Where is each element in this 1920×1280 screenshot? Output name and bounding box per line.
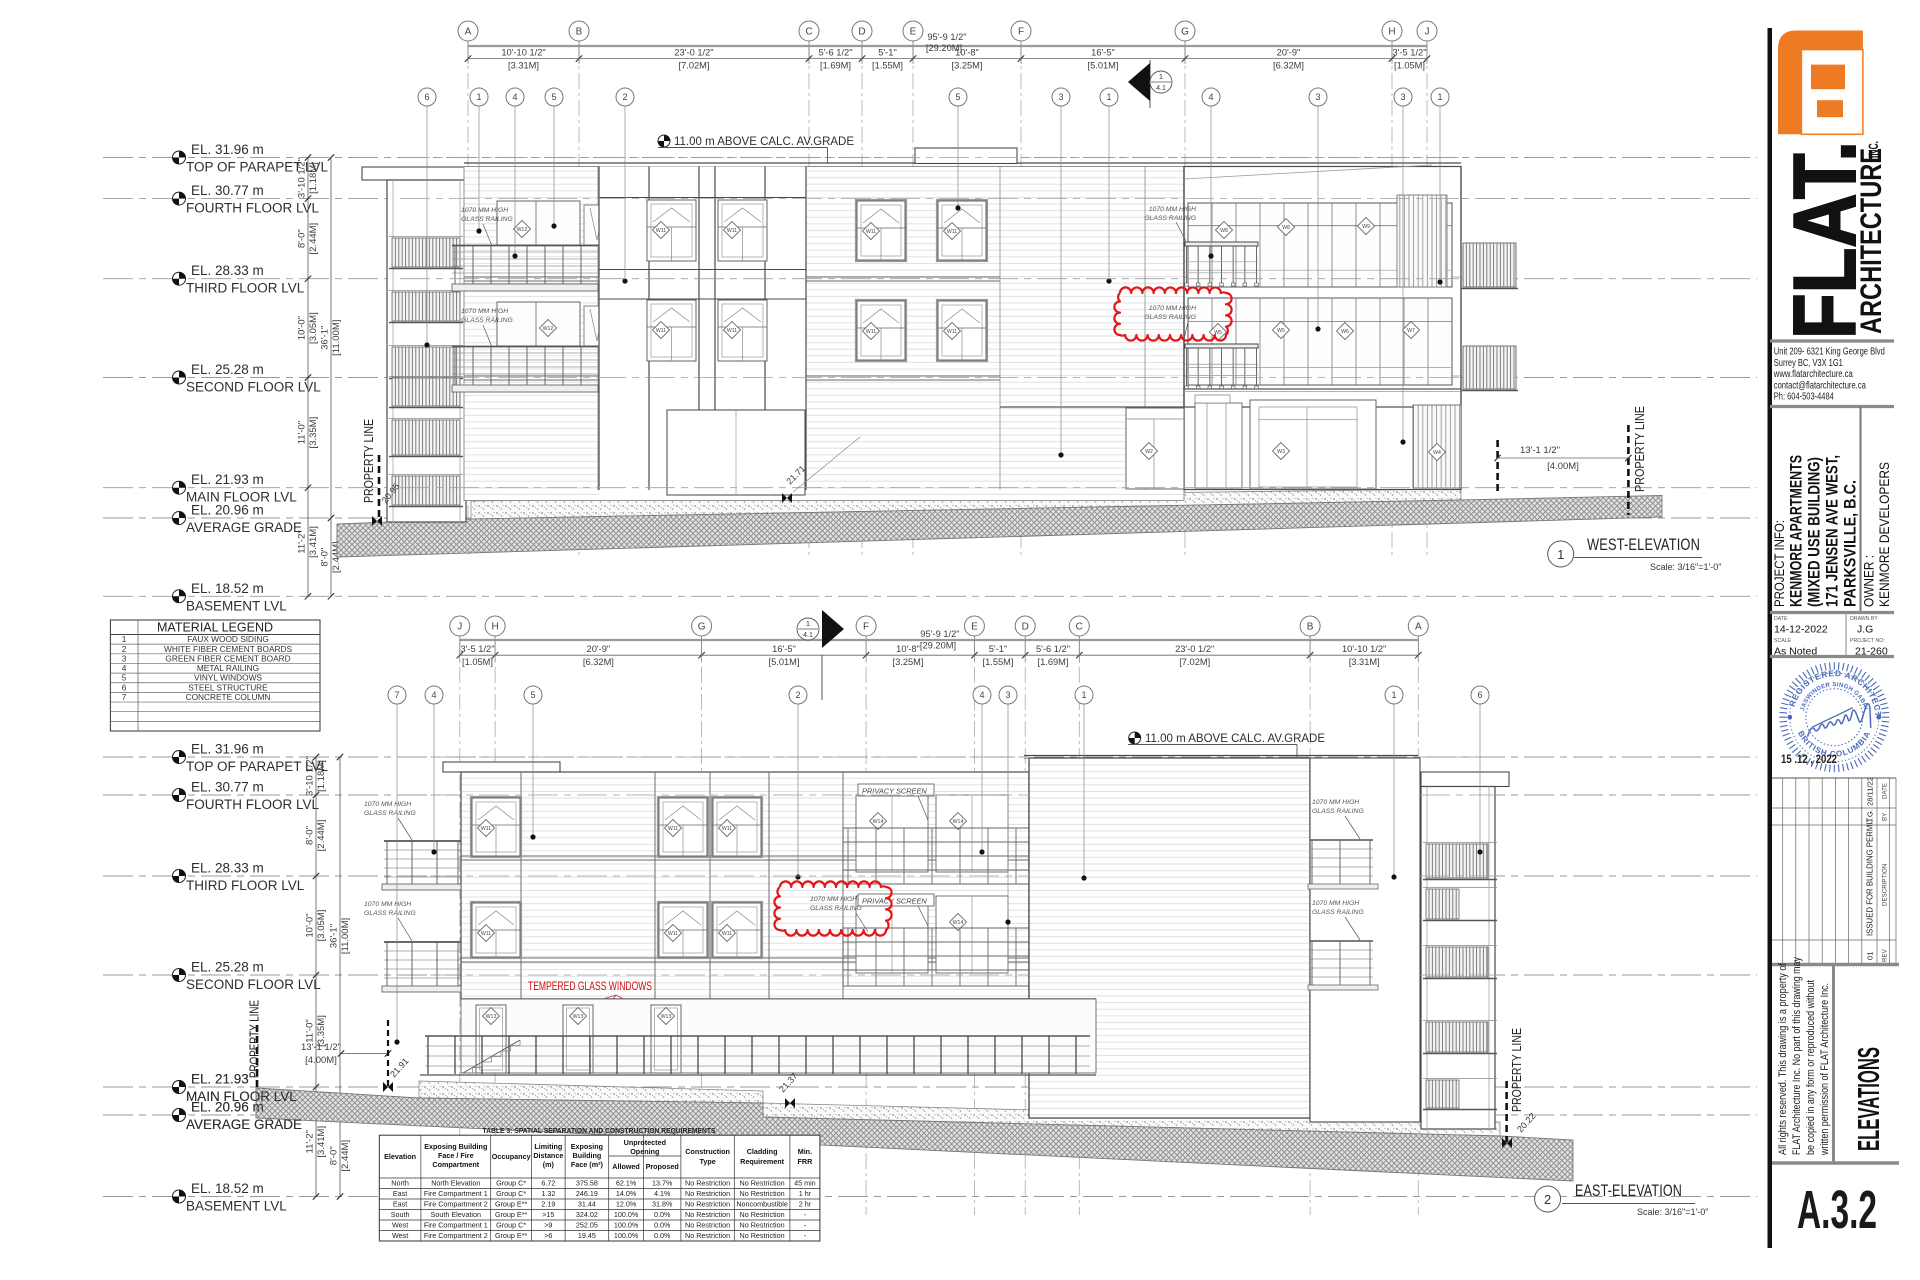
svg-text:DESCRIPTION: DESCRIPTION — [1882, 864, 1889, 906]
svg-text:B: B — [1307, 622, 1314, 633]
svg-text:EL. 18.52 m: EL. 18.52 m — [191, 1181, 264, 1196]
svg-text:No Restriction: No Restriction — [740, 1210, 785, 1219]
svg-text:Allowed: Allowed — [612, 1162, 640, 1171]
svg-text:G: G — [698, 622, 706, 633]
svg-text:31.44: 31.44 — [578, 1200, 596, 1209]
svg-text:North: North — [391, 1179, 409, 1188]
svg-text:5: 5 — [955, 92, 960, 102]
svg-text:Ph: 604-503-4484: Ph: 604-503-4484 — [1774, 392, 1834, 403]
svg-text:Compartment: Compartment — [432, 1160, 479, 1169]
svg-text:East: East — [393, 1200, 407, 1209]
svg-text:FOURTH FLOOR LVL: FOURTH FLOOR LVL — [186, 797, 320, 812]
svg-text:1070 MM HIGH: 1070 MM HIGH — [364, 901, 411, 908]
svg-text:1: 1 — [1159, 74, 1163, 81]
svg-text:A: A — [465, 27, 472, 38]
svg-text:4: 4 — [512, 92, 517, 102]
svg-text:W11: W11 — [722, 931, 732, 937]
svg-text:W8: W8 — [1220, 228, 1228, 234]
svg-text:MATERIAL LEGEND: MATERIAL LEGEND — [157, 621, 273, 635]
svg-text:[5.01M]: [5.01M] — [768, 657, 799, 667]
svg-text:1070 MM HIGH: 1070 MM HIGH — [1149, 305, 1196, 312]
svg-text:Fire Compartment 2: Fire Compartment 2 — [424, 1231, 488, 1240]
svg-text:EL. 20.96 m: EL. 20.96 m — [191, 503, 264, 518]
svg-text:Requirement: Requirement — [740, 1157, 785, 1166]
svg-text:GREEN FIBER CEMENT BOARD: GREEN FIBER CEMENT BOARD — [165, 653, 290, 663]
svg-text:1: 1 — [476, 92, 481, 102]
svg-text:F: F — [1018, 27, 1024, 38]
svg-text:(MIXED USE BUILDING): (MIXED USE BUILDING) — [1805, 457, 1824, 607]
svg-text:C: C — [1076, 622, 1083, 633]
svg-text:KENMORE APARTMENTS: KENMORE APARTMENTS — [1787, 455, 1806, 607]
svg-text:W11: W11 — [866, 229, 876, 235]
svg-text:[3.41M]: [3.41M] — [308, 526, 319, 558]
svg-text:W11: W11 — [727, 328, 737, 334]
svg-text:PRIVACY SCREEN: PRIVACY SCREEN — [862, 897, 927, 906]
svg-text:10'-10 1/2": 10'-10 1/2" — [501, 48, 545, 58]
svg-text:1070 MM HIGH: 1070 MM HIGH — [461, 207, 508, 214]
svg-text:10'-0": 10'-0" — [297, 316, 308, 340]
svg-text:1070 MM HIGH: 1070 MM HIGH — [364, 801, 411, 808]
svg-text:4: 4 — [979, 690, 984, 700]
svg-text:5: 5 — [530, 690, 535, 700]
svg-text:62.1%: 62.1% — [616, 1179, 637, 1188]
svg-text:1: 1 — [1081, 690, 1086, 700]
svg-text:>6: >6 — [544, 1231, 552, 1240]
svg-text:4.1%: 4.1% — [654, 1189, 671, 1198]
svg-text:1070 MM HIGH: 1070 MM HIGH — [1312, 900, 1359, 907]
svg-text:[2.44M]: [2.44M] — [308, 223, 319, 255]
svg-text:5'-6 1/2": 5'-6 1/2" — [1036, 644, 1070, 654]
svg-text:13.7%: 13.7% — [652, 1179, 673, 1188]
svg-text:3'-5 1/2": 3'-5 1/2" — [460, 644, 494, 654]
svg-text:OWNER :: OWNER : — [1862, 555, 1877, 607]
svg-text:METAL RAILING: METAL RAILING — [197, 663, 259, 673]
svg-text:[1.18M]: [1.18M] — [308, 162, 319, 194]
svg-text:INC.: INC. — [1866, 141, 1881, 158]
svg-text:4: 4 — [431, 690, 436, 700]
svg-text:[1.69M]: [1.69M] — [820, 61, 851, 71]
svg-text:DRAWN BY: DRAWN BY — [1850, 616, 1878, 622]
svg-text:W13: W13 — [661, 1014, 672, 1020]
svg-text:EL. 28.33 m: EL. 28.33 m — [191, 263, 264, 278]
svg-text:Scale: 3/16"=1'-0": Scale: 3/16"=1'-0" — [1650, 562, 1721, 572]
svg-text:PARKSVILLE, B.C.: PARKSVILLE, B.C. — [1841, 480, 1860, 607]
svg-text:1070 MM HIGH: 1070 MM HIGH — [1312, 799, 1359, 806]
svg-text:Group C*: Group C* — [496, 1179, 526, 1188]
svg-text:W9: W9 — [1362, 224, 1370, 230]
svg-text:EL. 20.96 m: EL. 20.96 m — [191, 1100, 264, 1115]
svg-text:E: E — [971, 622, 978, 633]
svg-text:Building: Building — [573, 1151, 602, 1160]
svg-text:Opening: Opening — [630, 1147, 659, 1156]
svg-text:Unprotected: Unprotected — [624, 1138, 666, 1147]
svg-text:No Restriction: No Restriction — [740, 1221, 785, 1230]
svg-text:W3: W3 — [1277, 449, 1285, 455]
svg-text:>15: >15 — [542, 1210, 554, 1219]
svg-text:12.0%: 12.0% — [616, 1200, 637, 1209]
svg-text:AVERAGE GRADE: AVERAGE GRADE — [186, 1117, 302, 1132]
svg-text:28/11/22: 28/11/22 — [1866, 777, 1875, 806]
svg-text:EL. 31.96 m: EL. 31.96 m — [191, 142, 264, 157]
svg-text:EL. 31.96 m: EL. 31.96 m — [191, 742, 264, 757]
svg-text:Type: Type — [699, 1157, 715, 1166]
svg-text:1: 1 — [1106, 92, 1111, 102]
svg-text:W11: W11 — [668, 931, 678, 937]
svg-text:Group E**: Group E** — [495, 1210, 528, 1219]
svg-text:3: 3 — [122, 653, 127, 663]
svg-text:J: J — [1425, 27, 1430, 38]
svg-text:[6.32M]: [6.32M] — [1273, 61, 1304, 71]
svg-text:EL. 25.28 m: EL. 25.28 m — [191, 362, 264, 377]
svg-text:324.02: 324.02 — [576, 1210, 598, 1219]
svg-text:contact@flatarchitecture.ca: contact@flatarchitecture.ca — [1774, 380, 1866, 391]
svg-text:[3.35M]: [3.35M] — [308, 417, 319, 449]
svg-text:[4.00M]: [4.00M] — [1547, 461, 1579, 472]
svg-text:No Restriction: No Restriction — [685, 1189, 730, 1198]
svg-text:W11: W11 — [722, 826, 732, 832]
svg-text:45 min: 45 min — [794, 1179, 816, 1188]
svg-text:1070 MM HIGH: 1070 MM HIGH — [1149, 206, 1196, 213]
svg-text:11.00 m ABOVE CALC. AV.GRADE: 11.00 m ABOVE CALC. AV.GRADE — [674, 136, 854, 148]
svg-text:2: 2 — [1544, 1192, 1551, 1207]
svg-text:No Restriction: No Restriction — [740, 1231, 785, 1240]
svg-text:0.0%: 0.0% — [654, 1231, 671, 1240]
svg-text:Cladding: Cladding — [747, 1147, 778, 1156]
svg-text:[2.44M]: [2.44M] — [316, 820, 327, 852]
svg-text:[1.55M]: [1.55M] — [982, 657, 1013, 667]
svg-text:W8: W8 — [1282, 225, 1290, 231]
svg-text:1: 1 — [1437, 92, 1442, 102]
svg-text:PROJECT INFO:: PROJECT INFO: — [1772, 520, 1787, 607]
svg-text:West: West — [392, 1221, 408, 1230]
svg-text:W11: W11 — [656, 228, 666, 234]
svg-text:[3.31M]: [3.31M] — [508, 61, 539, 71]
svg-text:3: 3 — [1058, 92, 1063, 102]
svg-text:2.19: 2.19 — [541, 1200, 555, 1209]
svg-text:36'-1": 36'-1" — [329, 924, 340, 948]
svg-text:GLASS RAILING: GLASS RAILING — [1144, 314, 1196, 321]
svg-text:Exposing Building: Exposing Building — [424, 1142, 487, 1151]
svg-text:Surrey BC, V3X 1G1: Surrey BC, V3X 1G1 — [1774, 358, 1843, 369]
svg-text:SECOND FLOOR LVL: SECOND FLOOR LVL — [186, 380, 321, 395]
svg-text:FAUX WOOD SIDING: FAUX WOOD SIDING — [187, 634, 269, 644]
svg-text:A: A — [1415, 622, 1422, 633]
svg-text:100.0%: 100.0% — [614, 1231, 639, 1240]
svg-text:No Restriction: No Restriction — [740, 1179, 785, 1188]
svg-text:FLAT Architecture Inc. No part: FLAT Architecture Inc. No part of this d… — [1791, 957, 1803, 1155]
svg-text:No Restriction: No Restriction — [685, 1179, 730, 1188]
svg-text:Construction: Construction — [685, 1147, 730, 1156]
svg-text:[29.20M]: [29.20M] — [926, 43, 962, 53]
svg-text:GLASS RAILING: GLASS RAILING — [461, 317, 513, 324]
svg-text:[1.05M]: [1.05M] — [462, 657, 493, 667]
svg-text:6: 6 — [1477, 690, 1482, 700]
svg-text:1 hr: 1 hr — [799, 1189, 812, 1198]
svg-text:KENMORE DEVELOPERS: KENMORE DEVELOPERS — [1876, 462, 1892, 607]
svg-text:6: 6 — [122, 682, 127, 692]
svg-text:1.32: 1.32 — [541, 1189, 555, 1198]
svg-text:Unit 209- 6321 King George Blv: Unit 209- 6321 King George Blvd — [1774, 347, 1885, 358]
svg-text:W11: W11 — [668, 826, 678, 832]
svg-text:J: J — [457, 622, 462, 633]
svg-text:2: 2 — [795, 690, 800, 700]
svg-text:[7.02M]: [7.02M] — [678, 61, 709, 71]
svg-text:W4: W4 — [1433, 450, 1441, 456]
svg-text:E: E — [910, 27, 917, 38]
svg-text:PROJECT NO:: PROJECT NO: — [1850, 638, 1885, 644]
svg-text:Face / Fire: Face / Fire — [438, 1151, 474, 1160]
svg-text:C: C — [805, 27, 812, 38]
svg-text:11'-2": 11'-2" — [305, 1130, 316, 1154]
svg-text:1: 1 — [122, 634, 127, 644]
svg-text:TEMPERED GLASS WINDOWS: TEMPERED GLASS WINDOWS — [528, 981, 652, 993]
svg-text:5'-1": 5'-1" — [989, 644, 1008, 654]
svg-text:[3.31M]: [3.31M] — [1349, 657, 1380, 667]
svg-text:EL. 21.93: EL. 21.93 — [191, 1072, 249, 1087]
svg-text:SCALE: SCALE — [1774, 638, 1792, 644]
svg-text:[3.05M]: [3.05M] — [316, 910, 327, 942]
svg-text:Group C*: Group C* — [496, 1189, 526, 1198]
svg-text:GLASS RAILING: GLASS RAILING — [1144, 215, 1196, 222]
svg-text:W5: W5 — [1277, 328, 1285, 334]
svg-text:No Restriction: No Restriction — [740, 1189, 785, 1198]
svg-text:BY: BY — [1882, 813, 1889, 821]
svg-text:W12: W12 — [517, 227, 528, 233]
svg-text:WHITE FIBER CEMENT BOARDS: WHITE FIBER CEMENT BOARDS — [164, 644, 292, 654]
svg-text:100.0%: 100.0% — [614, 1210, 639, 1219]
svg-text:PROPERTY LINE: PROPERTY LINE — [1633, 406, 1647, 492]
svg-text:1070 MM HIGH: 1070 MM HIGH — [810, 896, 857, 903]
svg-text:B: B — [576, 27, 583, 38]
svg-text:W14: W14 — [873, 819, 884, 825]
svg-text:2: 2 — [622, 92, 627, 102]
svg-text:1: 1 — [806, 621, 810, 628]
svg-text:11.00 m ABOVE CALC. AV.GRADE: 11.00 m ABOVE CALC. AV.GRADE — [1145, 733, 1325, 745]
svg-text:All rights reserved. This draw: All rights reserved. This drawing is a p… — [1777, 962, 1789, 1155]
svg-text:0.0%: 0.0% — [654, 1221, 671, 1230]
svg-text:PROPERTY LINE: PROPERTY LINE — [1510, 1028, 1524, 1112]
svg-text:14-12-2022: 14-12-2022 — [1774, 624, 1828, 636]
svg-text:South: South — [391, 1210, 410, 1219]
svg-text:H: H — [1388, 27, 1395, 38]
svg-text:TABLE 3: SPATIAL SEPARATION AN: TABLE 3: SPATIAL SEPARATION AND CONSTRUC… — [483, 1126, 716, 1135]
svg-text:Noncombustible: Noncombustible — [736, 1200, 788, 1209]
svg-text:BASEMENT LVL: BASEMENT LVL — [186, 598, 287, 613]
svg-text:[5.01M]: [5.01M] — [1087, 61, 1118, 71]
svg-text:GLASS RAILING: GLASS RAILING — [1312, 808, 1364, 815]
svg-text:20'-9": 20'-9" — [587, 644, 611, 654]
svg-text:1: 1 — [1557, 547, 1564, 562]
svg-text:[3.05M]: [3.05M] — [308, 312, 319, 344]
svg-text:GLASS RAILING: GLASS RAILING — [810, 905, 862, 912]
svg-text:Elevation: Elevation — [384, 1152, 416, 1161]
svg-text:23'-0 1/2": 23'-0 1/2" — [674, 48, 713, 58]
svg-text:Exposing: Exposing — [571, 1142, 603, 1151]
svg-text:W11: W11 — [481, 931, 491, 937]
svg-text:No Restriction: No Restriction — [685, 1221, 730, 1230]
svg-text:ARCHITECTURE: ARCHITECTURE — [1855, 148, 1888, 334]
svg-text:ELEVATIONS: ELEVATIONS — [1851, 1047, 1886, 1151]
svg-text:written permission of FLAT Arc: written permission of FLAT Architecture … — [1819, 983, 1831, 1156]
svg-text:[6.32M]: [6.32M] — [583, 657, 614, 667]
svg-text:STEEL STRUCTURE: STEEL STRUCTURE — [188, 682, 268, 692]
svg-text:W11: W11 — [866, 329, 876, 335]
svg-text:7: 7 — [394, 690, 399, 700]
svg-text:3'-10 1/2": 3'-10 1/2" — [305, 756, 316, 796]
svg-text:[1.18M]: [1.18M] — [316, 760, 327, 792]
svg-text:13'-1 1/2": 13'-1 1/2" — [1520, 445, 1560, 456]
svg-text:246.19: 246.19 — [576, 1189, 598, 1198]
svg-text:[2.44M]: [2.44M] — [340, 1140, 351, 1172]
svg-text:4.1: 4.1 — [1156, 85, 1166, 92]
svg-text:252.05: 252.05 — [576, 1221, 598, 1230]
svg-text:West: West — [392, 1231, 408, 1240]
svg-text:W11: W11 — [947, 329, 957, 335]
svg-text:23'-0 1/2": 23'-0 1/2" — [1175, 644, 1214, 654]
svg-text:10'-8": 10'-8" — [896, 644, 920, 654]
svg-text:DATE: DATE — [1774, 616, 1788, 622]
svg-text:W2: W2 — [1145, 449, 1153, 455]
svg-text:[1.05M]: [1.05M] — [1394, 61, 1425, 71]
svg-text:[1.69M]: [1.69M] — [1037, 657, 1068, 667]
svg-text:GLASS RAILING: GLASS RAILING — [364, 910, 416, 917]
svg-text:6.72: 6.72 — [541, 1179, 555, 1188]
svg-text:5: 5 — [551, 92, 556, 102]
svg-text:[3.25M]: [3.25M] — [951, 61, 982, 71]
svg-text:Fire Compartment 1: Fire Compartment 1 — [424, 1189, 488, 1198]
svg-text:4.1: 4.1 — [803, 632, 813, 639]
svg-text:GLASS RAILING: GLASS RAILING — [1312, 909, 1364, 916]
svg-text:3'-5 1/2": 3'-5 1/2" — [1392, 48, 1426, 58]
svg-text:GLASS RAILING: GLASS RAILING — [461, 216, 513, 223]
svg-text:G: G — [1181, 27, 1189, 38]
svg-text:Group C*: Group C* — [496, 1221, 526, 1230]
svg-text:7: 7 — [122, 692, 127, 702]
svg-text:THIRD FLOOR LVL: THIRD FLOOR LVL — [186, 281, 305, 296]
svg-text:20'-9": 20'-9" — [1277, 48, 1301, 58]
svg-text:Group E**: Group E** — [495, 1200, 528, 1209]
svg-text:3: 3 — [1400, 92, 1405, 102]
svg-text:Scale: 3/16"=1'-0": Scale: 3/16"=1'-0" — [1637, 1207, 1708, 1217]
svg-text:GLASS RAILING: GLASS RAILING — [364, 810, 416, 817]
svg-text:[11.00M]: [11.00M] — [340, 918, 351, 954]
svg-text:[7.02M]: [7.02M] — [1179, 657, 1210, 667]
svg-text:W12: W12 — [543, 326, 554, 332]
svg-text:SECOND FLOOR LVL: SECOND FLOOR LVL — [186, 977, 321, 992]
svg-text:[3.25M]: [3.25M] — [892, 657, 923, 667]
svg-text:11'-0": 11'-0" — [297, 421, 308, 445]
svg-text:THIRD FLOOR LVL: THIRD FLOOR LVL — [186, 878, 305, 893]
svg-text:1: 1 — [1391, 690, 1396, 700]
svg-text:Proposed: Proposed — [646, 1162, 679, 1171]
svg-text:Fire Compartment 2: Fire Compartment 2 — [424, 1200, 488, 1209]
svg-text:EL. 30.77 m: EL. 30.77 m — [191, 780, 264, 795]
svg-text:8'-0": 8'-0" — [329, 1146, 340, 1165]
svg-text:171 JENSEN AVE WEST,: 171 JENSEN AVE WEST, — [1823, 455, 1842, 607]
svg-text:Group E**: Group E** — [495, 1231, 528, 1240]
svg-text:F: F — [863, 622, 869, 633]
svg-text:01: 01 — [1866, 952, 1875, 960]
svg-text:North Elevation: North Elevation — [431, 1179, 480, 1188]
svg-text:6: 6 — [424, 92, 429, 102]
svg-text:14.0%: 14.0% — [616, 1189, 637, 1198]
svg-text:[4.00M]: [4.00M] — [305, 1055, 337, 1066]
svg-text:No Restriction: No Restriction — [685, 1210, 730, 1219]
svg-text:ISSUED FOR BUILDING PERMIT: ISSUED FOR BUILDING PERMIT — [1866, 817, 1875, 936]
svg-text:(m): (m) — [543, 1160, 555, 1169]
svg-text:11'-2": 11'-2" — [297, 530, 308, 554]
svg-text:[29.20M]: [29.20M] — [920, 641, 956, 651]
svg-text:D: D — [1022, 622, 1029, 633]
svg-text:PRIVACY SCREEN: PRIVACY SCREEN — [862, 787, 927, 796]
svg-text:2 hr: 2 hr — [799, 1200, 812, 1209]
svg-text:[1.55M]: [1.55M] — [872, 61, 903, 71]
svg-text:5'-6 1/2": 5'-6 1/2" — [818, 48, 852, 58]
svg-text:FOURTH FLOOR LVL: FOURTH FLOOR LVL — [186, 201, 320, 216]
svg-text:0.0%: 0.0% — [654, 1210, 671, 1219]
svg-text:W13: W13 — [573, 1014, 584, 1020]
svg-text:>9: >9 — [544, 1221, 552, 1230]
svg-text:W11: W11 — [727, 228, 737, 234]
svg-text:be copied in any form or repro: be copied in any form or reproduced with… — [1805, 980, 1817, 1155]
svg-text:A.3.2: A.3.2 — [1797, 1180, 1877, 1240]
svg-text:Limiting: Limiting — [534, 1142, 562, 1151]
svg-text:AVERAGE GRADE: AVERAGE GRADE — [186, 520, 302, 535]
svg-text:100.0%: 100.0% — [614, 1221, 639, 1230]
svg-text:11'-0": 11'-0" — [305, 1019, 316, 1043]
svg-text:CONCRETE COLUMN: CONCRETE COLUMN — [186, 692, 271, 702]
svg-text:95'-9 1/2": 95'-9 1/2" — [927, 32, 966, 42]
svg-text:W11: W11 — [947, 229, 957, 235]
svg-text:10'-0": 10'-0" — [305, 913, 316, 937]
svg-text:PROPERTY LINE: PROPERTY LINE — [248, 1000, 262, 1078]
svg-text:EL. 28.33 m: EL. 28.33 m — [191, 861, 264, 876]
svg-text:Face (m²): Face (m²) — [571, 1160, 604, 1169]
svg-text:8'-0": 8'-0" — [320, 548, 331, 567]
svg-text:VINYL WINDOWS: VINYL WINDOWS — [194, 673, 262, 683]
svg-text:W14: W14 — [953, 920, 964, 926]
svg-text:No Restriction: No Restriction — [685, 1231, 730, 1240]
svg-text:95'-9 1/2": 95'-9 1/2" — [920, 629, 959, 639]
svg-text:1070 MM HIGH: 1070 MM HIGH — [461, 308, 508, 315]
svg-text:Fire Compartment 1: Fire Compartment 1 — [424, 1221, 488, 1230]
svg-text:16'-5": 16'-5" — [1091, 48, 1115, 58]
svg-text:375.58: 375.58 — [576, 1179, 598, 1188]
svg-text:W13: W13 — [486, 1014, 497, 1020]
svg-text:8'-0": 8'-0" — [305, 826, 316, 845]
svg-text:15 .12 , 2022: 15 .12 , 2022 — [1781, 754, 1837, 766]
svg-text:DATE: DATE — [1882, 783, 1889, 799]
svg-text:3: 3 — [1005, 690, 1010, 700]
svg-text:36'-1": 36'-1" — [320, 326, 331, 350]
svg-text:South Elevation: South Elevation — [431, 1210, 481, 1219]
svg-text:[11.00M]: [11.00M] — [331, 320, 342, 356]
svg-text:EL. 21.93 m: EL. 21.93 m — [191, 472, 264, 487]
svg-text:16'-5": 16'-5" — [772, 644, 796, 654]
svg-text:J.G: J.G — [1857, 624, 1873, 636]
svg-text:East: East — [393, 1189, 407, 1198]
svg-text:EL. 30.77 m: EL. 30.77 m — [191, 183, 264, 198]
svg-text:H: H — [491, 622, 498, 633]
svg-text:8'-0": 8'-0" — [297, 229, 308, 248]
svg-text:4: 4 — [1208, 92, 1213, 102]
svg-text:W7: W7 — [1407, 328, 1415, 334]
svg-text:EL. 18.52 m: EL. 18.52 m — [191, 581, 264, 596]
svg-text:W11: W11 — [481, 826, 491, 832]
svg-text:PROPERTY LINE: PROPERTY LINE — [362, 419, 376, 503]
svg-text:EL. 25.28 m: EL. 25.28 m — [191, 960, 264, 975]
svg-text:No Restriction: No Restriction — [685, 1200, 730, 1209]
